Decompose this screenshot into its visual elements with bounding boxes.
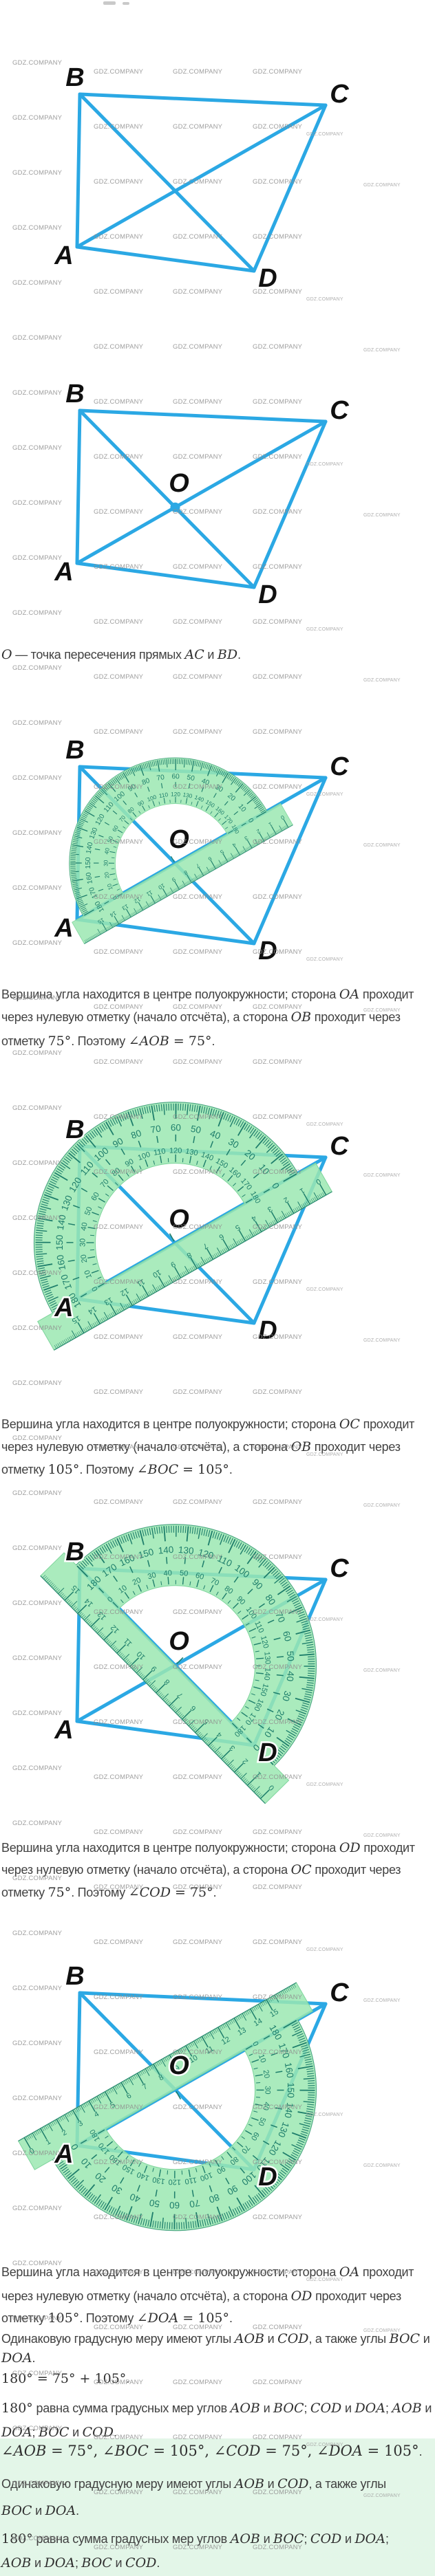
explain-aob: Вершина угла находится в центре полуокру… [1,985,414,1003]
explain-aob: через нулевую отметку (начало отсчёта), … [1,1008,401,1026]
explain-cod: отметку 75°. Поэтому ∠COD = 75°. [1,1884,216,1901]
explain-boc: Вершина угла находится в центре полуокру… [1,1415,414,1433]
note-equal-measures: DOA. [1,2349,35,2367]
explain-cod: Вершина угла находится в центре полуокру… [1,1839,415,1857]
explain-doa: Вершина угла находится в центре полуокру… [1,2263,414,2281]
note-intersection: O — точка пересечения прямых AC и BD. [1,646,241,664]
explain-doa: отметку 105°. Поэтому ∠DOA = 105°. [1,2309,233,2327]
highlight-line: AOB и DOA; BOC и COD. [1,2554,160,2572]
note-sum-pairs: 180° равна сумма градусных мер углов AOB… [1,2399,432,2417]
highlight-line: 180° равна сумма градусных мер углов AOB… [1,2530,389,2548]
explain-aob: отметку 75°. Поэтому ∠AOB = 75°. [1,1032,215,1050]
explain-boc: через нулевую отметку (начало отсчёта), … [1,1438,401,1456]
note-equal-measures: Одинаковую градусную меру имеют углы AOB… [1,2330,430,2348]
highlight-line: BOC и DOA. [1,2502,79,2520]
explain-cod: через нулевую отметку (начало отсчёта), … [1,1861,401,1879]
highlight-line: ∠AOB = 75°, ∠BOC = 105°, ∠COD = 75°, ∠DO… [1,2442,422,2460]
explain-doa: через нулевую отметку (начало отсчёта), … [1,2287,401,2305]
text-layer: O — точка пересечения прямых AC и BD.Вер… [0,0,435,2576]
highlight-line: Одинаковую градусную меру имеют углы AOB… [1,2475,386,2493]
note-sum: 180° = 75° + 105°. [1,2370,129,2388]
note-sum-pairs: DOA; BOC и COD. [1,2423,117,2441]
page: ABCD ABCDO 01801017020160301504014050130… [0,0,435,2576]
explain-boc: отметку 105°. Поэтому ∠BOC = 105°. [1,1461,233,1478]
